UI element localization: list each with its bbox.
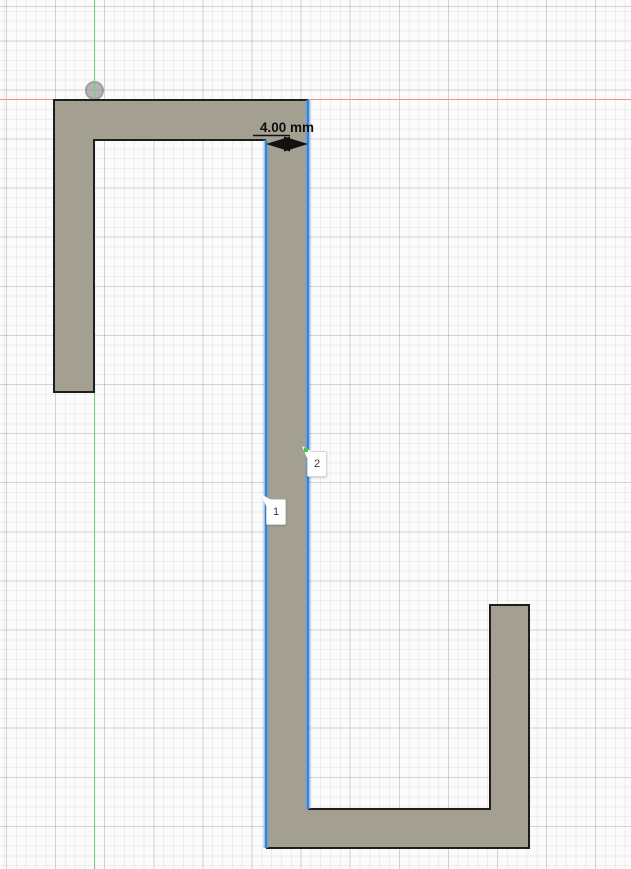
sketch-geometry: 4.00 mm [0,0,631,869]
edge-midpoint-marker[interactable] [304,448,308,452]
sketch-profile-region[interactable] [54,100,529,848]
selection-tag-2: 2 [307,451,327,477]
selection-tag-2-label: 2 [314,458,320,470]
sketch-canvas[interactable]: 4.00 mm 1 2 [0,0,631,869]
selection-tag-1-label: 1 [273,506,279,518]
selection-tag-1: 1 [266,499,286,525]
dimension-value[interactable]: 4.00 mm [260,120,314,135]
